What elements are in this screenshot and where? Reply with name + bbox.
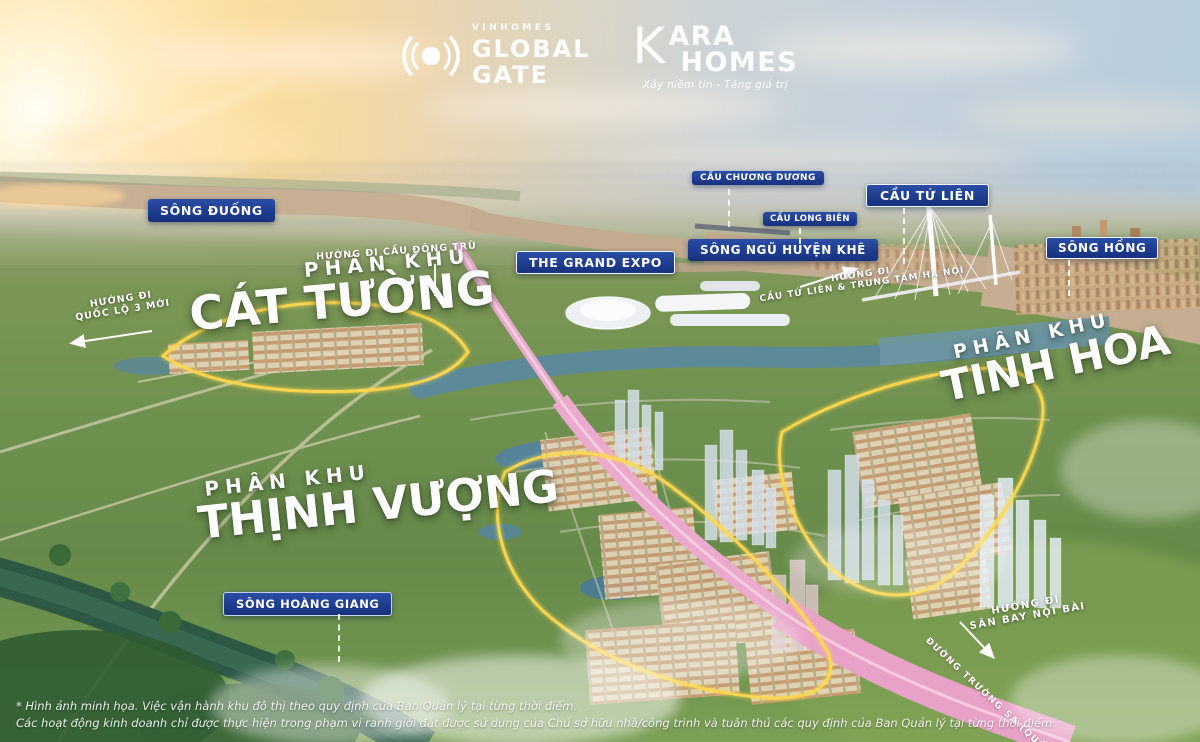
global-gate-emblem-icon [402,27,460,85]
vinhomes-global-gate-logo: VINHOMES GLOBAL GATE [402,24,591,89]
connector-cau-long-bien [799,228,801,244]
kara-homes-wordmark: K ARA HOMES [633,24,799,75]
vinhomes-wordmark: VINHOMES [472,24,591,33]
label-cau-tu-lien: CẦU TỨ LIÊN [866,184,989,207]
label-song-ngu-huyen-khe: SÔNG NGŨ HUYỆN KHÊ [688,239,878,261]
direction-trung-tam-ha-noi: HƯỚNG ĐI CẦU TỨ LIÊN & TRUNG TÂM HÀ NỘI [758,256,966,305]
connector-cau-tu-lien [903,208,905,264]
ara-wordmark: ARA [668,24,798,50]
kara-tagline: Xây niềm tin - Tăng giá trị [643,79,788,91]
kara-homes-logo: K ARA HOMES Xây niềm tin - Tăng giá trị [633,24,799,91]
direction-san-bay-noi-bai: HƯỚNG ĐI SÂN BAY NỘI BÀI [967,590,1087,632]
disclaimer-line-2: Các hoạt động kinh doanh chỉ được thực h… [16,715,1056,732]
gate-wordmark: GATE [472,63,591,89]
disclaimer-text: * Hình ảnh minh họa. Việc vận hành khu đ… [16,698,1056,731]
label-song-hoang-giang: SÔNG HOÀNG GIANG [223,592,392,616]
zone-title-tinh-hoa: PHÂN KHU TINH HOA [934,299,1174,409]
homes-wordmark: HOMES [680,50,798,76]
label-song-hong: SÔNG HỒNG [1046,237,1158,259]
header-logos: VINHOMES GLOBAL GATE K ARA HOMES Xây niề… [0,24,1200,91]
vinhomes-logo-text: VINHOMES GLOBAL GATE [472,24,591,89]
zone-title-thinh-vuong: PHÂN KHU THỊNH VƯỢNG [193,441,561,546]
kara-k-icon: K [633,24,666,69]
label-cau-long-bien: CẦU LONG BIÊN [763,212,857,226]
connector-cau-chuong-duong [728,189,730,227]
masterplan-poster: SÔNG ĐUỐNG CẦU CHƯƠNG DƯƠNG CẦU LONG BIÊ… [0,0,1200,742]
global-wordmark: GLOBAL [472,37,591,63]
connector-song-hoang-giang [338,614,340,662]
zone-name: CÁT TƯỜNG [187,265,496,339]
direction-marker-bar [434,264,436,296]
disclaimer-line-1: * Hình ảnh minh họa. Việc vận hành khu đ… [16,698,1056,715]
map-labels: SÔNG ĐUỐNG CẦU CHƯƠNG DƯƠNG CẦU LONG BIÊ… [0,0,1200,742]
label-the-grand-expo: THE GRAND EXPO [516,251,675,274]
connector-song-hong [1068,260,1070,296]
label-cau-chuong-duong: CẦU CHƯƠNG DƯƠNG [692,171,824,185]
direction-quoc-lo-3: HƯỚNG ĐI QUỐC LỘ 3 MỚI [73,287,171,324]
label-song-duong: SÔNG ĐUỐNG [148,199,275,222]
